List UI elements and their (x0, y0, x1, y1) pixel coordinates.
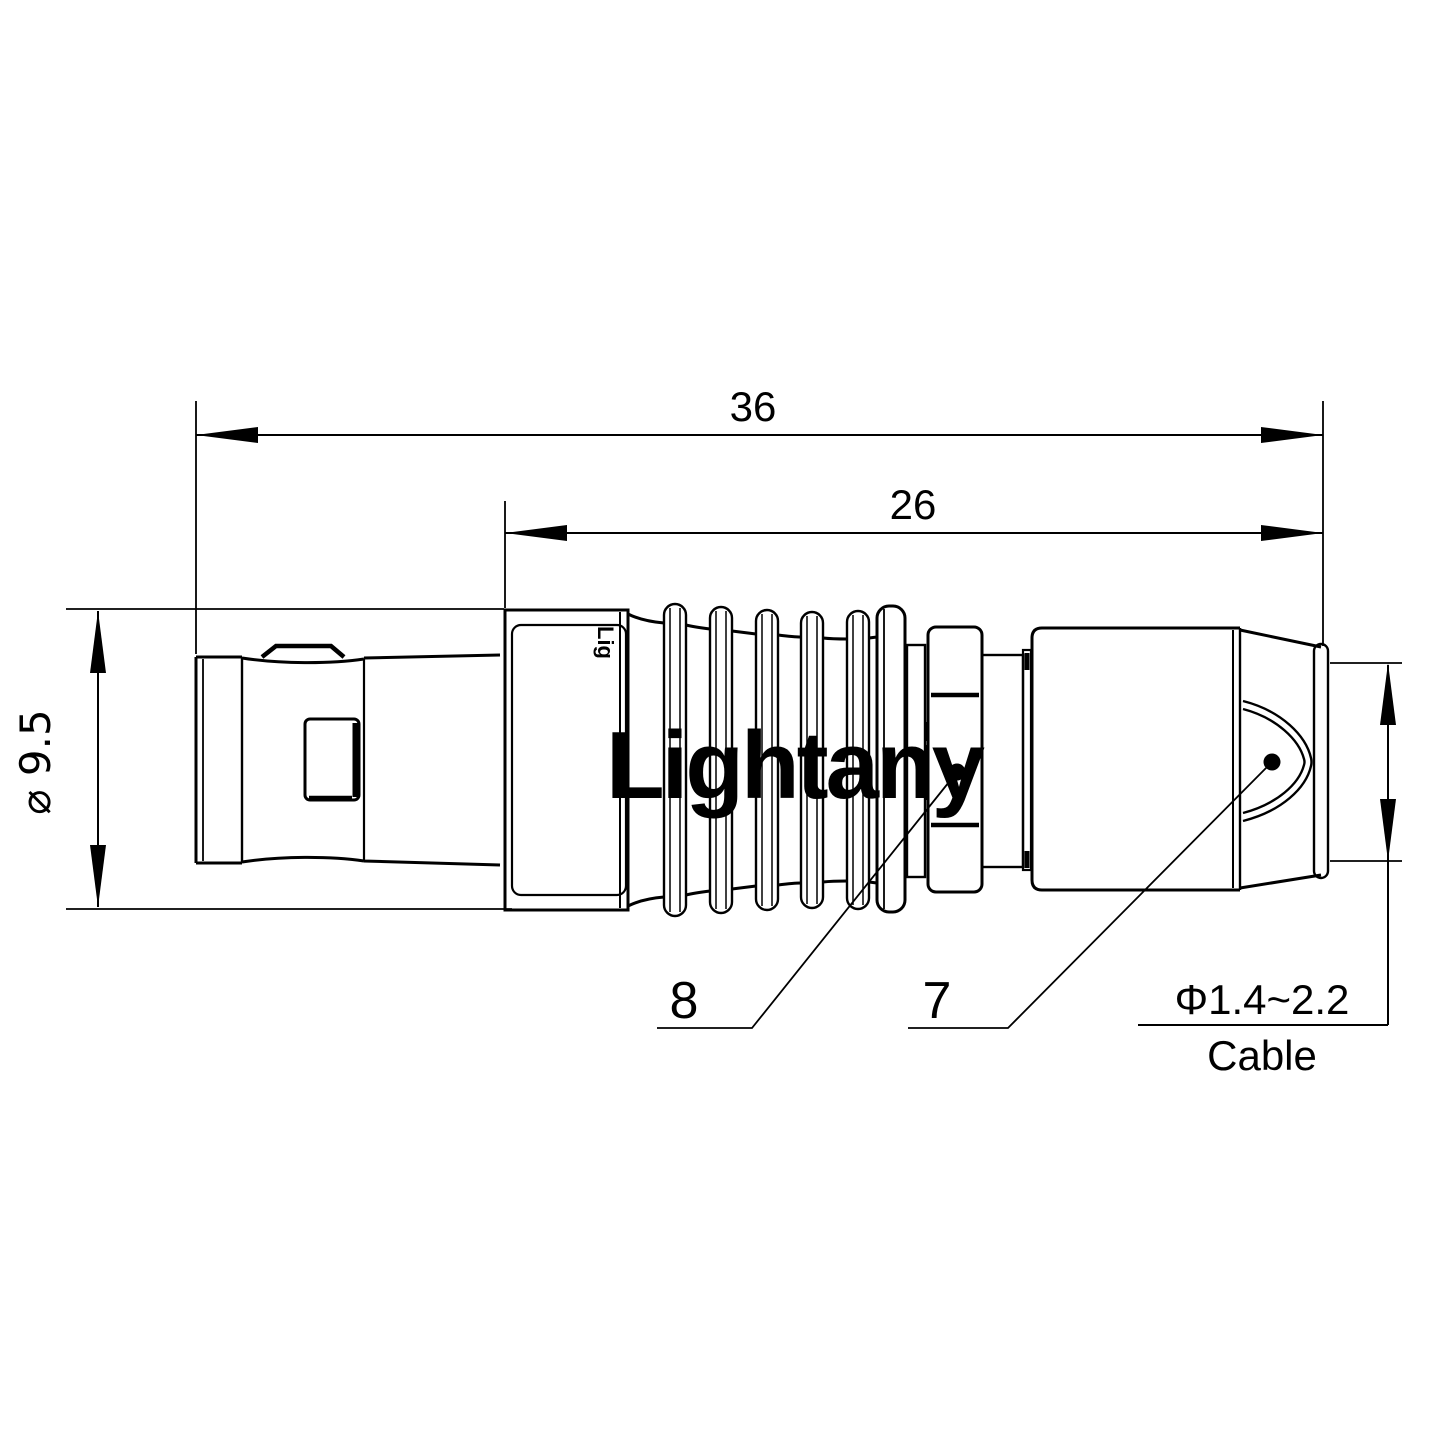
body-engraving-text: Lig (593, 626, 618, 659)
dim26-arrow-right (1261, 525, 1323, 541)
dim36-arrow-right (1261, 427, 1323, 443)
neck (982, 655, 1023, 867)
drawing-canvas: Lightany Lig (0, 0, 1440, 1440)
dim26-arrow-left (505, 525, 567, 541)
rear-body (1032, 628, 1240, 890)
rear-taper (1240, 630, 1321, 888)
dim26-value: 26 (890, 481, 937, 528)
cable-arrow-up (1380, 663, 1396, 725)
cable-diameter-value: Φ1.4~2.2 (1175, 976, 1350, 1023)
key-bump (262, 646, 344, 657)
dim36-extension-lines (196, 401, 1323, 654)
dia-arrow-up (90, 611, 106, 673)
grip-top-contour (628, 614, 877, 639)
cable-label: Cable (1207, 1032, 1317, 1079)
rear-face (1314, 644, 1328, 878)
dia-arrow-down (90, 845, 106, 907)
dim36-arrow-left (196, 427, 258, 443)
part-label-8: 8 (670, 972, 699, 1030)
cable-arrow-down (1380, 799, 1396, 861)
dimension-body-length: 26 (505, 481, 1323, 608)
grip-bottom-contour (628, 881, 877, 906)
dia-value: ⌀ 9.5 (11, 709, 60, 814)
leader8-dot (949, 764, 966, 781)
dim36-value: 36 (730, 383, 777, 430)
part-label-7: 7 (923, 972, 952, 1030)
key-window (305, 719, 359, 800)
dimension-cable: Φ1.4~2.2 Cable (1138, 663, 1402, 1079)
rear-nut (1032, 628, 1328, 890)
nose-section (196, 646, 500, 865)
leader7-dot (1264, 754, 1281, 771)
connector-outline: Lig (196, 604, 1328, 916)
technical-drawing: Lightany Lig (0, 0, 1440, 1440)
